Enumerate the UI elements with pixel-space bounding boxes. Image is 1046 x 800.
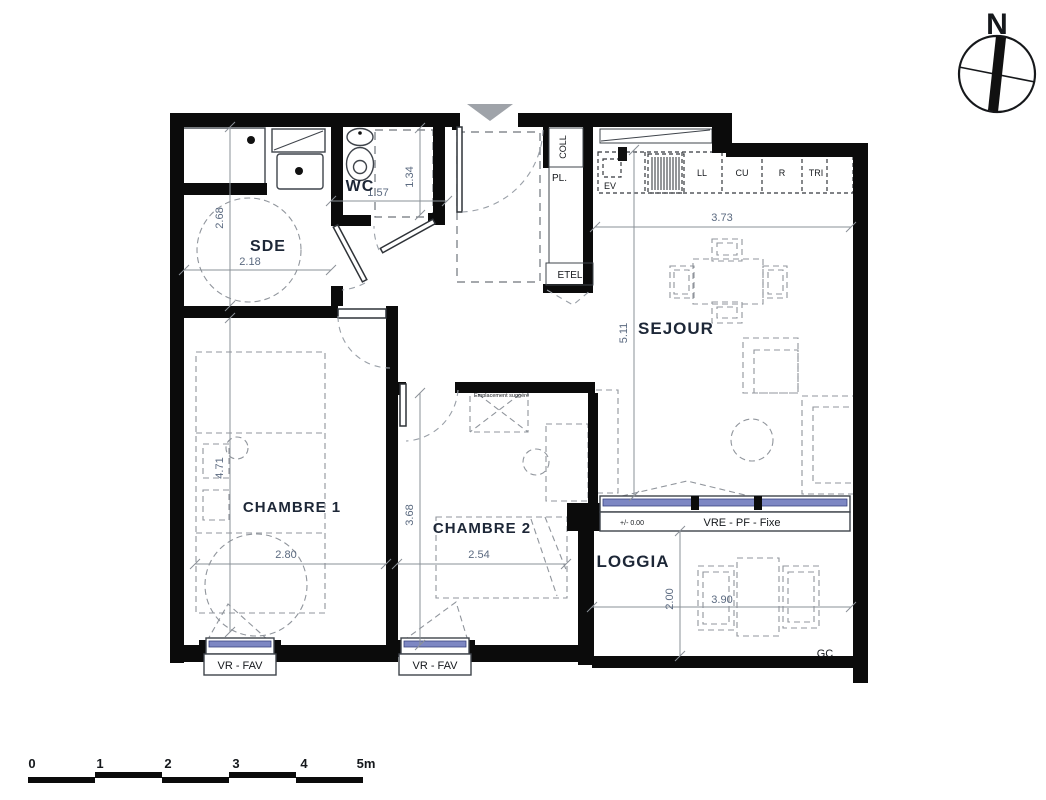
entry-zone-outline [457, 132, 540, 282]
floor-plan-page: VRE - PF - Fixe +/- 0.00 VR - FAV VR - F… [0, 0, 1046, 800]
nightstand-outline [203, 490, 229, 520]
label-ll: LL [697, 168, 707, 178]
label-cu: CU [736, 168, 749, 178]
room-label-chambre1: CHAMBRE 1 [243, 499, 341, 516]
glazing [603, 499, 847, 506]
dim-loggia-height: 2.00 [664, 588, 676, 609]
room-label-chambre2: CHAMBRE 2 [433, 520, 531, 537]
chair-outline [712, 239, 742, 261]
faucet-icon [618, 147, 627, 161]
room-label-loggia: LOGGIA [596, 552, 669, 571]
entrance-arrow-icon [467, 104, 513, 121]
label-coll: COLL [558, 135, 568, 159]
table-outline [737, 558, 779, 636]
label-pl: PL. [552, 173, 567, 184]
chair-outline [523, 449, 549, 475]
dim-sejour-height: 5.11 [618, 323, 630, 344]
label-suggested-location: Emplacement suggéré [474, 393, 529, 399]
dim-chambre1-width: 2.80 [275, 549, 296, 561]
toilet-icon [347, 129, 374, 181]
scale-tick-0: 0 [28, 756, 35, 771]
sde-fixtures [181, 128, 325, 189]
scale-tick-1: 1 [96, 756, 103, 771]
north-label: N [986, 8, 1008, 41]
room-label-sejour: SEJOUR [638, 319, 714, 338]
label-gc: GC [817, 648, 834, 660]
sink-bowl-icon [603, 159, 621, 177]
room-label-wc: WC [346, 178, 375, 195]
basin-drain-icon [295, 167, 303, 175]
label-ev: EV [604, 181, 616, 191]
window-swing [403, 602, 468, 641]
dim-kitchen-width: 3.73 [711, 212, 732, 224]
north-arrow: N [959, 8, 1035, 112]
floor-plan-drawing: VRE - PF - Fixe +/- 0.00 VR - FAV VR - F… [0, 0, 1046, 800]
label-etel: ETEL [557, 270, 582, 281]
label-tri: TRI [809, 168, 824, 178]
dim-loggia-width: 3.90 [711, 594, 732, 606]
scale-tick-5m: 5m [357, 756, 376, 771]
entry-door [457, 127, 543, 212]
dining-table-outline [693, 259, 763, 304]
bedroom2-door [400, 384, 458, 441]
shower-drain-icon [247, 136, 255, 144]
dim-chambre1-height: 4.71 [214, 457, 226, 478]
window-vr-fav-2: VR - FAV [399, 638, 471, 675]
bedroom2-furniture [403, 388, 588, 641]
dim-sde-width: 2.18 [239, 256, 260, 268]
window-swing [207, 604, 268, 641]
scale-tick-3: 3 [232, 756, 239, 771]
window-label: VR - FAV [217, 660, 263, 672]
window-vr-fav-1: VR - FAV [204, 638, 276, 675]
side-table-outline [731, 419, 773, 461]
glazing [209, 641, 271, 647]
window-vre-pf-fixe: VRE - PF - Fixe +/- 0.00 [600, 496, 850, 531]
glazing [404, 641, 466, 647]
dim-chambre2-width: 2.54 [468, 549, 489, 561]
dim-wc-height: 1.34 [404, 166, 416, 187]
armchair-outline [743, 338, 798, 393]
sofa-outline [802, 396, 854, 494]
wc-door [374, 219, 435, 252]
dim-sde-height: 2.68 [214, 207, 226, 228]
bedroom1-furniture [196, 352, 325, 641]
room-label-sde: SDE [250, 238, 286, 255]
label-r: R [779, 168, 786, 178]
window-swing [622, 481, 753, 497]
tv-stand-outline [596, 390, 618, 493]
scale-tick-2: 2 [164, 756, 171, 771]
scale-bar: 0 1 2 3 4 5m [28, 756, 375, 783]
desk-outline [546, 424, 588, 501]
dim-chambre2-height: 3.68 [404, 504, 416, 525]
bedroom1-door [338, 309, 390, 368]
sejour-furniture [596, 239, 854, 497]
window-label: VR - FAV [412, 660, 458, 672]
bed-outline [196, 352, 325, 613]
level-label: +/- 0.00 [620, 520, 644, 527]
cooktop-icon [648, 154, 684, 193]
sde-door [333, 225, 367, 290]
window-label: VRE - PF - Fixe [703, 517, 780, 529]
scale-tick-4: 4 [300, 756, 308, 771]
